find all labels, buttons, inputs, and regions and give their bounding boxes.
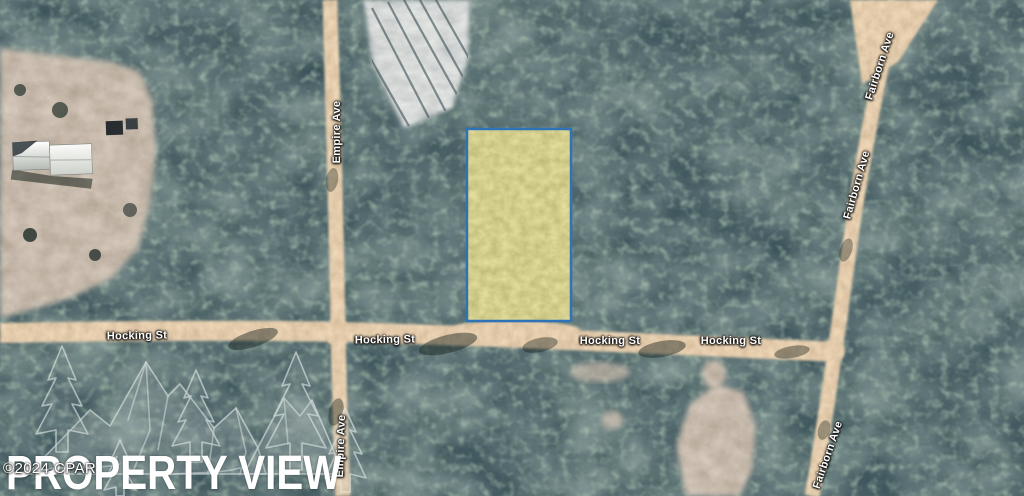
aerial-property-view: Hocking St Hocking St Hocking St Hocking… xyxy=(0,0,1024,496)
road-label-hocking-st-2: Hocking St xyxy=(355,333,416,346)
road-label-empire-ave-top: Empire Ave xyxy=(331,101,343,164)
road-label-hocking-st-3: Hocking St xyxy=(580,335,640,347)
road-label-hocking-st-4: Hocking St xyxy=(701,335,761,347)
road-label-hocking-st-1: Hocking St xyxy=(107,329,168,342)
highlighted-parcel xyxy=(467,129,571,321)
copyright-text: ©2024 CPAR xyxy=(3,460,96,478)
